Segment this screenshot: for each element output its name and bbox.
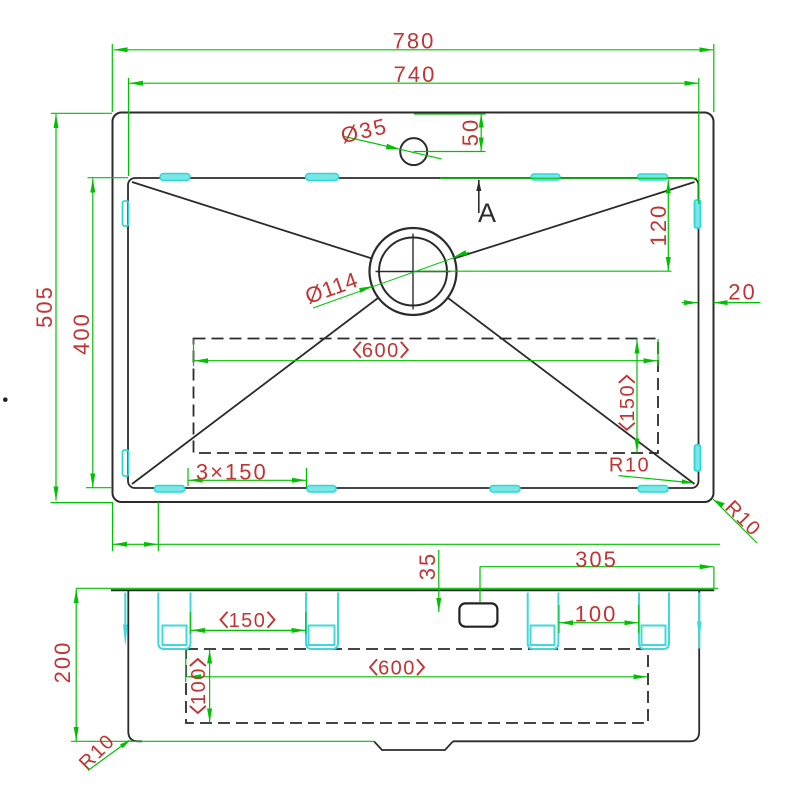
svg-text:740: 740	[394, 62, 437, 87]
svg-text:A: A	[478, 198, 496, 228]
svg-text:100: 100	[575, 602, 618, 627]
svg-text:600: 600	[362, 340, 400, 362]
svg-text:3×150: 3×150	[196, 459, 268, 484]
svg-text:780: 780	[393, 29, 436, 54]
svg-text:100: 100	[188, 667, 210, 705]
svg-text:R10: R10	[609, 455, 650, 477]
svg-text:305: 305	[575, 547, 618, 572]
svg-text:50: 50	[458, 118, 483, 146]
svg-text:505: 505	[32, 285, 57, 328]
svg-text:600: 600	[378, 658, 416, 680]
svg-text:35: 35	[415, 552, 440, 580]
svg-text:150: 150	[617, 384, 639, 422]
svg-text:200: 200	[50, 641, 75, 684]
svg-text:150: 150	[229, 610, 267, 632]
svg-text:400: 400	[69, 312, 94, 355]
svg-text:120: 120	[646, 204, 671, 247]
svg-text:20: 20	[728, 280, 756, 305]
